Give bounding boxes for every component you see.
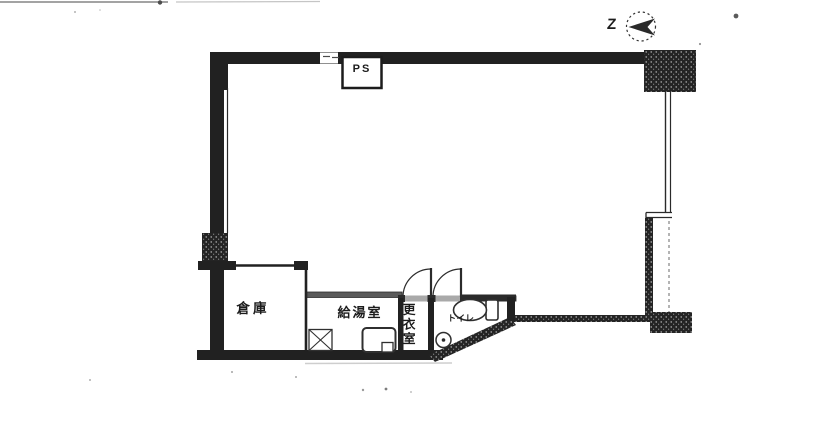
toilet-door-arc: [433, 269, 461, 297]
changing-room-door-arc: [403, 269, 431, 297]
equipment-box-icon: [309, 330, 332, 351]
floor-plan-drawing: [0, 0, 833, 425]
kitchenette-label: 給湯室: [318, 306, 402, 320]
north-mark-label: Z: [606, 17, 616, 34]
right-window-wall: [645, 91, 672, 315]
kitchenette-front-wall: [307, 292, 402, 298]
changing-room-label: 更衣室: [400, 303, 414, 359]
north-arrow-icon: [627, 12, 656, 41]
wash-basin-icon: [436, 333, 451, 348]
floor-plan-scan: PS 倉庫 給湯室 更衣室 トイレ Z: [0, 0, 833, 425]
toilet-label: トイレ: [441, 314, 481, 323]
ps-label: PS: [342, 63, 382, 75]
door-swings: [403, 268, 461, 297]
top-right-column: [644, 50, 696, 92]
left-column: [202, 233, 228, 264]
storage-room-label: 倉庫: [220, 302, 286, 317]
sink-icon: [363, 328, 396, 352]
bottom-right-column: [650, 312, 692, 333]
